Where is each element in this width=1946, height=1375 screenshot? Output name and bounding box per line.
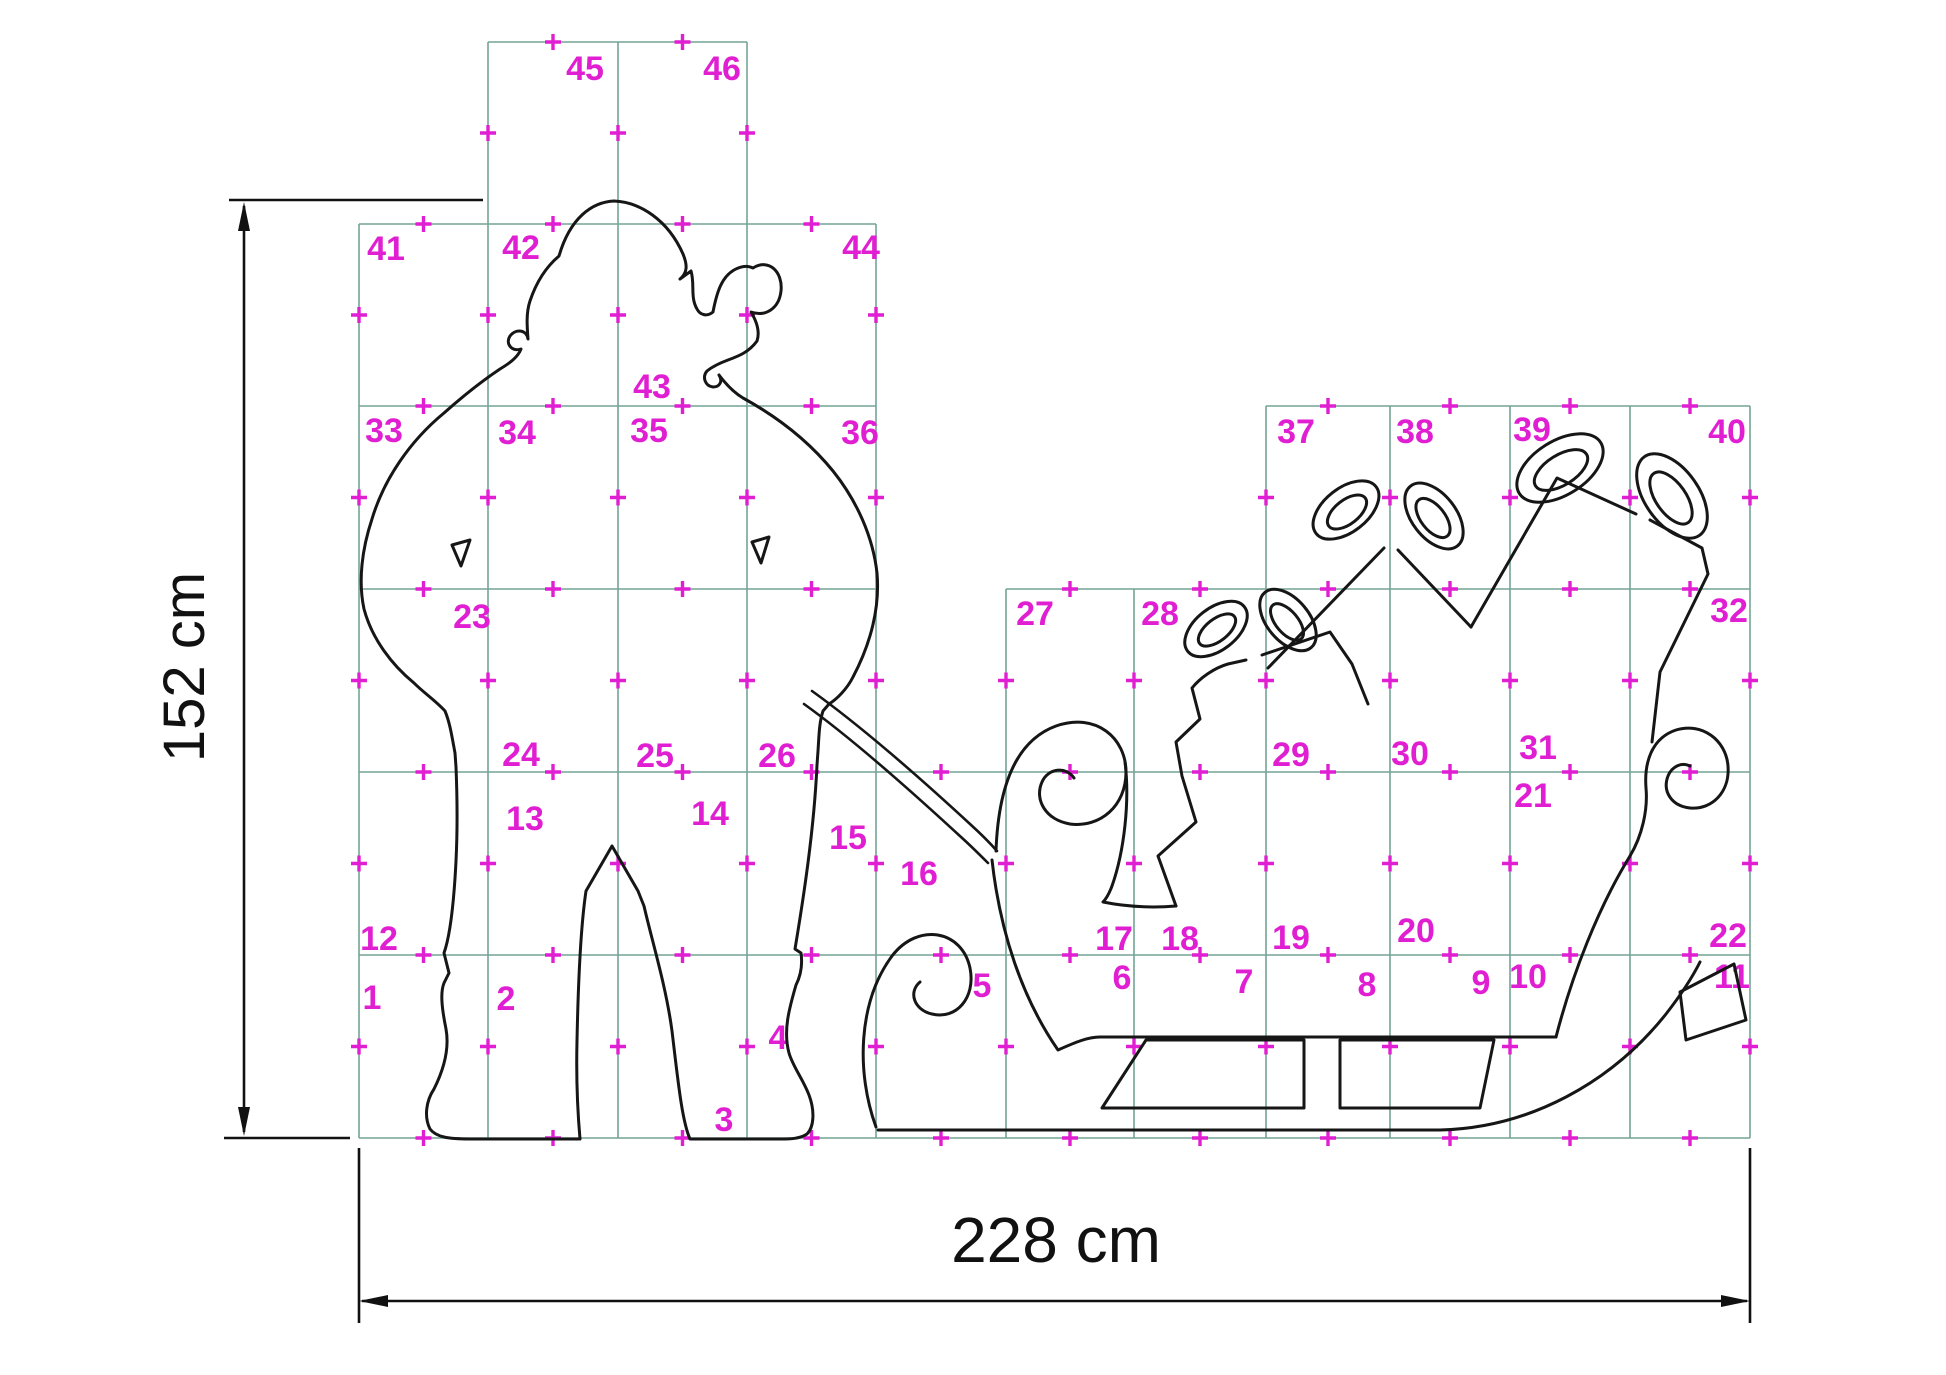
alignment-cross (804, 398, 820, 414)
alignment-cross (1442, 398, 1458, 414)
alignment-cross (416, 398, 432, 414)
cell-number: 23 (453, 598, 491, 636)
alignment-cross (1126, 856, 1142, 872)
alignment-cross (675, 34, 691, 50)
alignment-cross (1062, 581, 1078, 597)
cell-number: 6 (1113, 959, 1132, 997)
sleigh-strut (1340, 1040, 1494, 1108)
runner-tail (1680, 964, 1746, 1040)
width-arrowhead (1721, 1295, 1750, 1307)
cell-number: 3 (715, 1101, 734, 1139)
alignment-cross (1320, 764, 1336, 780)
santa-outline (361, 201, 997, 1139)
alignment-cross (675, 947, 691, 963)
alignment-cross (1192, 1130, 1208, 1146)
alignment-cross (480, 1039, 496, 1055)
alignment-cross (675, 764, 691, 780)
cell-number: 34 (498, 414, 536, 452)
alignment-cross (868, 307, 884, 323)
alignment-cross (1742, 856, 1758, 872)
cell-number: 2 (497, 980, 516, 1018)
cell-number: 46 (703, 50, 741, 88)
alignment-cross (933, 764, 949, 780)
alignment-cross (1320, 1130, 1336, 1146)
width-dimension-label: 228 cm (951, 1204, 1161, 1276)
alignment-cross (868, 490, 884, 506)
cell-number: 12 (360, 920, 398, 958)
alignment-cross (1320, 581, 1336, 597)
alignment-cross (1062, 1130, 1078, 1146)
alignment-cross (868, 673, 884, 689)
cell-number: 27 (1016, 595, 1054, 633)
alignment-cross (545, 34, 561, 50)
cell-number: 14 (691, 795, 729, 833)
alignment-cross (804, 947, 820, 963)
alignment-cross (351, 307, 367, 323)
alignment-crosses (351, 34, 1758, 1146)
cell-number: 31 (1519, 729, 1557, 767)
alignment-cross (1742, 490, 1758, 506)
alignment-cross (1742, 1039, 1758, 1055)
cell-number: 39 (1513, 411, 1551, 449)
gift-box (1471, 478, 1708, 742)
cell-numbers: 1234567891011121314151617181920212223242… (360, 50, 1750, 1139)
cell-number: 45 (566, 50, 604, 88)
alignment-cross (610, 673, 626, 689)
alignment-cross (1682, 1130, 1698, 1146)
alignment-cross (1192, 764, 1208, 780)
alignment-cross (1682, 947, 1698, 963)
alignment-cross (868, 856, 884, 872)
cell-number: 44 (842, 229, 880, 267)
alignment-cross (351, 490, 367, 506)
pattern-diagram: 1234567891011121314151617181920212223242… (0, 0, 1946, 1375)
alignment-cross (1126, 673, 1142, 689)
alignment-cross (351, 856, 367, 872)
alignment-cross (1062, 947, 1078, 963)
alignment-cross (545, 581, 561, 597)
alignment-cross (1382, 490, 1398, 506)
alignment-cross (480, 673, 496, 689)
alignment-cross (933, 1130, 949, 1146)
alignment-cross (1258, 490, 1274, 506)
alignment-cross (1320, 947, 1336, 963)
alignment-cross (998, 1039, 1014, 1055)
alignment-cross (545, 398, 561, 414)
presents-outline (1158, 420, 1722, 906)
height-dimension-label: 152 cm (152, 572, 217, 762)
cell-number: 19 (1272, 919, 1310, 957)
cell-number: 16 (900, 855, 938, 893)
alignment-cross (1442, 764, 1458, 780)
alignment-cross (933, 947, 949, 963)
height-arrowhead (238, 1107, 250, 1136)
alignment-cross (739, 490, 755, 506)
cell-number: 18 (1161, 920, 1199, 958)
cell-number: 8 (1358, 966, 1377, 1004)
cell-number: 5 (973, 967, 992, 1005)
alignment-cross (351, 673, 367, 689)
cell-number: 42 (502, 229, 540, 267)
gift-bow-loop (1175, 590, 1258, 667)
alignment-cross (416, 1130, 432, 1146)
santa-silhouette (361, 201, 877, 1139)
cell-number: 35 (630, 412, 668, 450)
cell-number: 36 (841, 414, 879, 452)
alignment-cross (675, 398, 691, 414)
alignment-cross (480, 856, 496, 872)
santa-arm-slits (452, 537, 769, 566)
gift-stack-zigzag (1158, 660, 1246, 906)
cell-number: 37 (1277, 413, 1315, 451)
alignment-cross (1562, 947, 1578, 963)
cell-number: 13 (506, 800, 544, 838)
alignment-cross (545, 216, 561, 232)
alignment-cross (416, 216, 432, 232)
sleigh-back-curl (1556, 728, 1728, 1037)
alignment-cross (739, 673, 755, 689)
alignment-cross (610, 125, 626, 141)
alignment-cross (739, 125, 755, 141)
alignment-cross (1192, 581, 1208, 597)
alignment-cross (804, 216, 820, 232)
alignment-cross (868, 1039, 884, 1055)
cell-number: 21 (1514, 777, 1552, 815)
alignment-cross (1562, 398, 1578, 414)
alignment-cross (416, 581, 432, 597)
pattern-sheet: 1234567891011121314151617181920212223242… (0, 0, 1946, 1375)
sleigh-front-neck (1103, 762, 1176, 907)
alignment-cross (1742, 673, 1758, 689)
width-arrowhead (359, 1295, 388, 1307)
cell-number: 29 (1272, 736, 1310, 774)
cell-number: 25 (636, 737, 674, 775)
runner-front-spiral (863, 934, 971, 1127)
alignment-cross (1622, 673, 1638, 689)
alignment-cross (1442, 1130, 1458, 1146)
alignment-cross (1442, 947, 1458, 963)
cell-number: 24 (502, 736, 540, 774)
alignment-cross (1502, 856, 1518, 872)
cell-number: 4 (769, 1019, 788, 1057)
cell-number: 15 (829, 819, 867, 857)
cell-number: 32 (1710, 592, 1748, 630)
alignment-cross (1502, 673, 1518, 689)
alignment-cross (416, 764, 432, 780)
alignment-cross (480, 125, 496, 141)
cell-number: 20 (1397, 912, 1435, 950)
cell-number: 1 (363, 979, 382, 1017)
cell-number: 9 (1472, 964, 1491, 1002)
alignment-cross (998, 673, 1014, 689)
cell-number: 26 (758, 737, 796, 775)
alignment-cross (1502, 1039, 1518, 1055)
alignment-cross (1562, 1130, 1578, 1146)
alignment-cross (804, 1130, 820, 1146)
cell-number: 30 (1391, 735, 1429, 773)
gift-bow-loop (1303, 469, 1390, 550)
alignment-cross (1320, 398, 1336, 414)
gift-bow-loop (1393, 473, 1474, 560)
cell-number: 33 (365, 412, 403, 450)
alignment-cross (675, 216, 691, 232)
cell-number: 40 (1708, 413, 1746, 451)
alignment-cross (1258, 673, 1274, 689)
cell-number: 38 (1396, 413, 1434, 451)
alignment-cross (1622, 490, 1638, 506)
alignment-cross (1682, 581, 1698, 597)
alignment-cross (1502, 490, 1518, 506)
alignment-cross (480, 490, 496, 506)
alignment-cross (739, 856, 755, 872)
alignment-cross (1442, 581, 1458, 597)
alignment-cross (1682, 398, 1698, 414)
alignment-cross (675, 581, 691, 597)
alignment-cross (1258, 856, 1274, 872)
alignment-cross (804, 581, 820, 597)
alignment-cross (351, 1039, 367, 1055)
alignment-cross (480, 307, 496, 323)
cell-number: 22 (1709, 917, 1747, 955)
alignment-cross (610, 1039, 626, 1055)
cell-number: 28 (1141, 595, 1179, 633)
alignment-cross (610, 490, 626, 506)
cell-number: 7 (1235, 963, 1254, 1001)
alignment-cross (1382, 856, 1398, 872)
alignment-cross (1562, 581, 1578, 597)
alignment-cross (545, 764, 561, 780)
sleigh-front-curl (996, 722, 1126, 851)
cell-number: 41 (367, 230, 405, 268)
cell-number: 10 (1509, 958, 1547, 996)
alignment-cross (545, 947, 561, 963)
cell-number: 43 (633, 368, 671, 406)
height-arrowhead (238, 202, 250, 231)
cell-number: 17 (1095, 920, 1133, 958)
alignment-cross (998, 856, 1014, 872)
alignment-cross (610, 307, 626, 323)
alignment-cross (739, 1039, 755, 1055)
alignment-cross (1562, 764, 1578, 780)
alignment-cross (1382, 673, 1398, 689)
alignment-cross (416, 947, 432, 963)
